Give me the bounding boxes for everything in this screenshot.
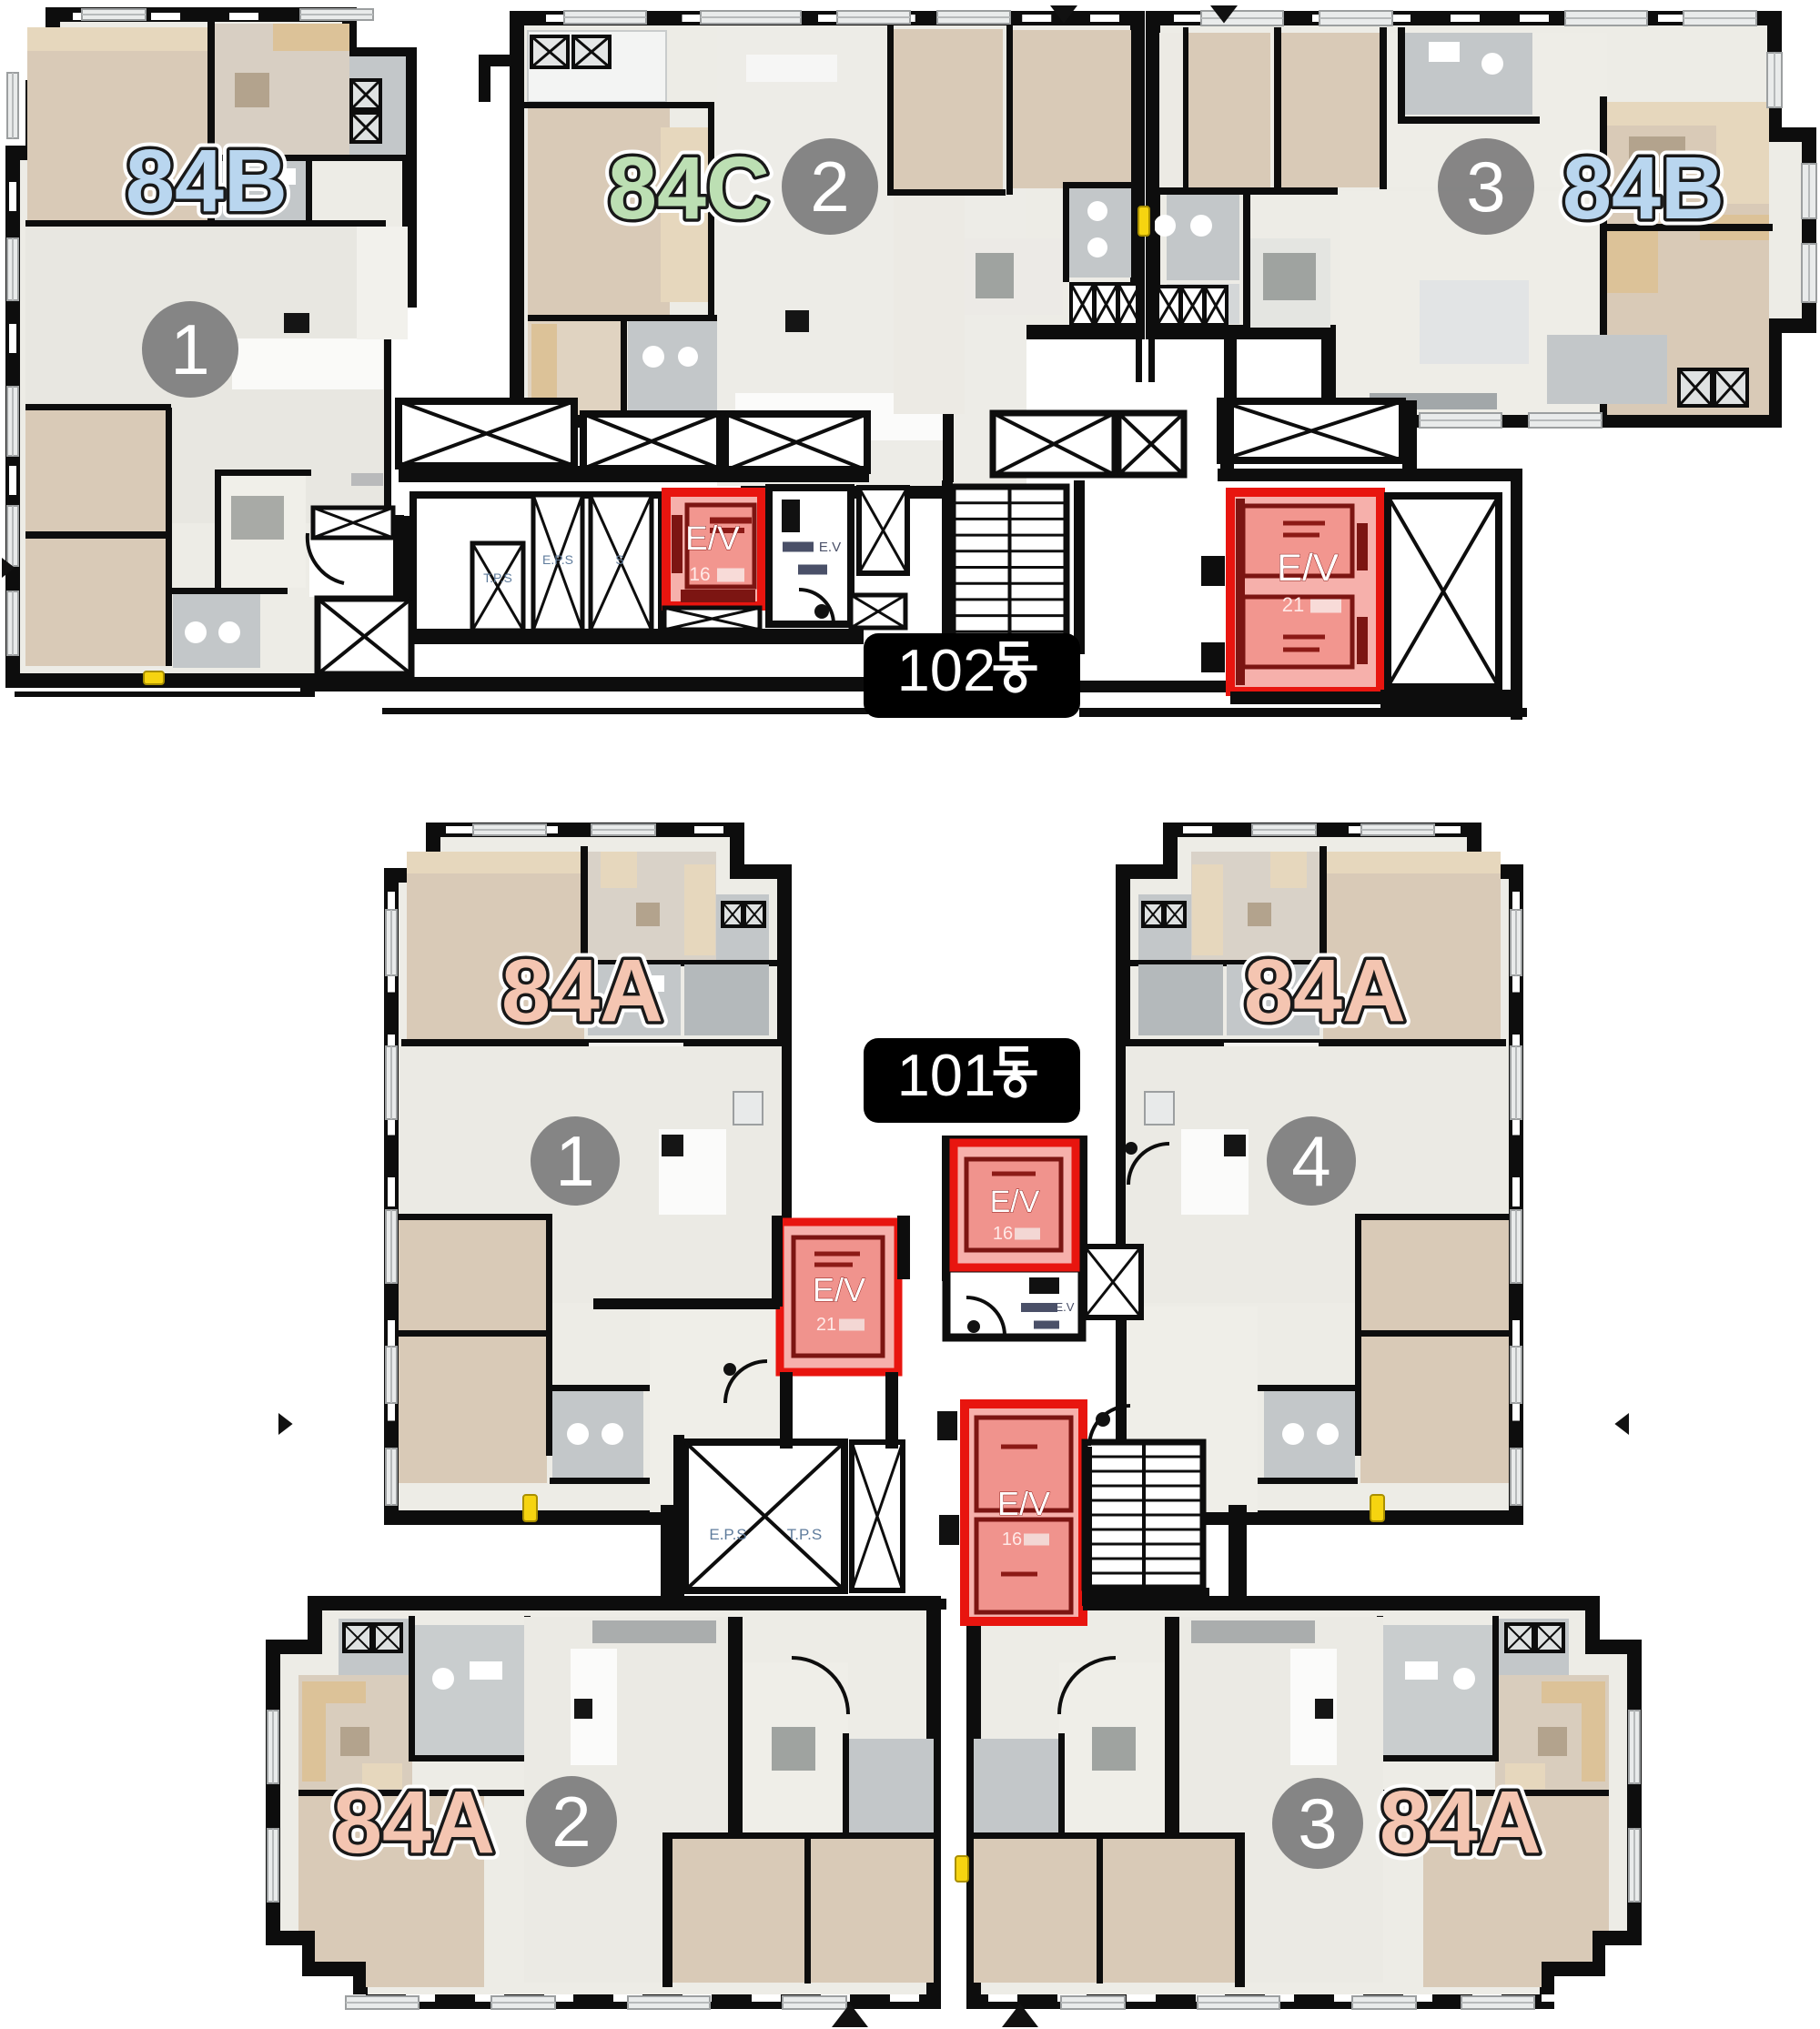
svg-text:T.P.S: T.P.S	[787, 1526, 822, 1543]
svg-text:21: 21	[816, 1315, 836, 1335]
svg-text:S: S	[615, 552, 623, 567]
svg-text:E.V: E.V	[819, 540, 841, 555]
svg-text:84B: 84B	[1562, 138, 1724, 237]
svg-text:84A: 84A	[1244, 941, 1406, 1040]
svg-text:2: 2	[551, 1782, 591, 1862]
svg-text:2: 2	[810, 146, 849, 227]
svg-text:1: 1	[555, 1121, 594, 1201]
svg-text:E.V: E.V	[1056, 1300, 1075, 1314]
svg-text:84A: 84A	[501, 941, 663, 1040]
svg-text:84C: 84C	[608, 138, 770, 237]
svg-text:16: 16	[993, 1224, 1013, 1244]
svg-text:E/V: E/V	[813, 1271, 865, 1308]
svg-text:E/V: E/V	[1277, 546, 1339, 589]
svg-text:3: 3	[1466, 146, 1505, 227]
svg-text:84A: 84A	[1380, 1772, 1542, 1872]
svg-text:4: 4	[1291, 1121, 1330, 1201]
svg-text:T.P.S: T.P.S	[483, 570, 512, 585]
svg-text:E.P.S: E.P.S	[542, 552, 573, 567]
svg-text:84B: 84B	[126, 131, 288, 230]
svg-text:16: 16	[1002, 1529, 1022, 1550]
svg-text:21: 21	[1282, 593, 1304, 616]
svg-text:E/V: E/V	[997, 1485, 1050, 1522]
svg-text:E.P.S: E.P.S	[709, 1526, 746, 1543]
svg-text:3: 3	[1298, 1783, 1337, 1863]
svg-text:16: 16	[689, 564, 710, 585]
svg-text:1: 1	[170, 309, 209, 389]
svg-text:101: 101	[897, 1042, 996, 1108]
svg-text:102: 102	[897, 637, 996, 703]
svg-text:E/V: E/V	[990, 1185, 1040, 1219]
svg-text:E/V: E/V	[685, 520, 740, 557]
svg-text:84A: 84A	[333, 1772, 495, 1872]
